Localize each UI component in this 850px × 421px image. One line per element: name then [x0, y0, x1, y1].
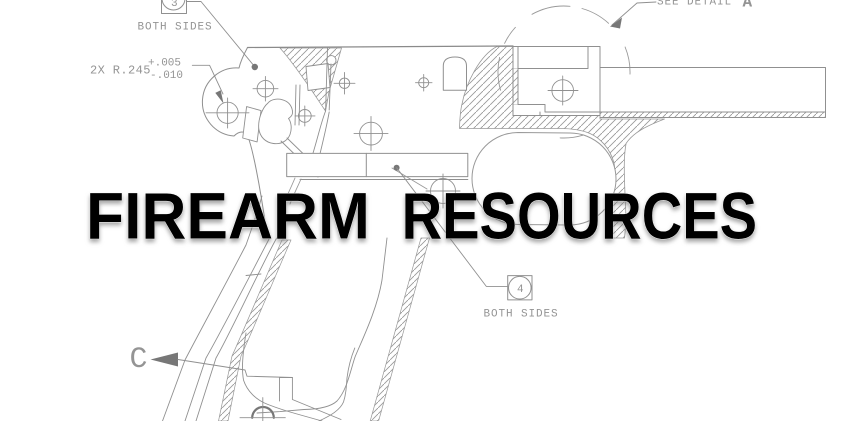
svg-text:C: C — [130, 343, 148, 377]
svg-text:-.010: -.010 — [150, 70, 183, 82]
svg-text:SEE DETAIL: SEE DETAIL — [657, 0, 732, 9]
svg-text:2X R.245: 2X R.245 — [90, 64, 151, 78]
svg-text:4: 4 — [517, 284, 524, 296]
svg-text:BOTH SIDES: BOTH SIDES — [138, 22, 213, 34]
svg-text:3: 3 — [171, 0, 178, 10]
svg-text:FIREARM: FIREARM — [86, 180, 370, 253]
svg-text:A: A — [743, 0, 753, 12]
svg-text:+.005: +.005 — [148, 58, 181, 70]
svg-text:RESOURCES: RESOURCES — [402, 180, 757, 253]
svg-text:BOTH SIDES: BOTH SIDES — [484, 309, 559, 321]
